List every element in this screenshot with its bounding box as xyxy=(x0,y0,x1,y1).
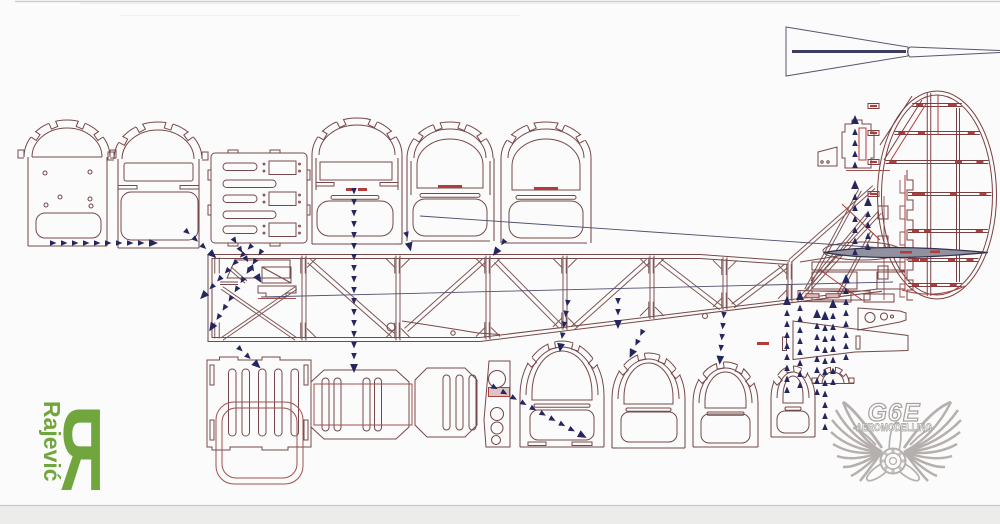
svg-text:AEROMODELLING: AEROMODELLING xyxy=(856,422,932,434)
svg-text:R: R xyxy=(60,385,104,515)
